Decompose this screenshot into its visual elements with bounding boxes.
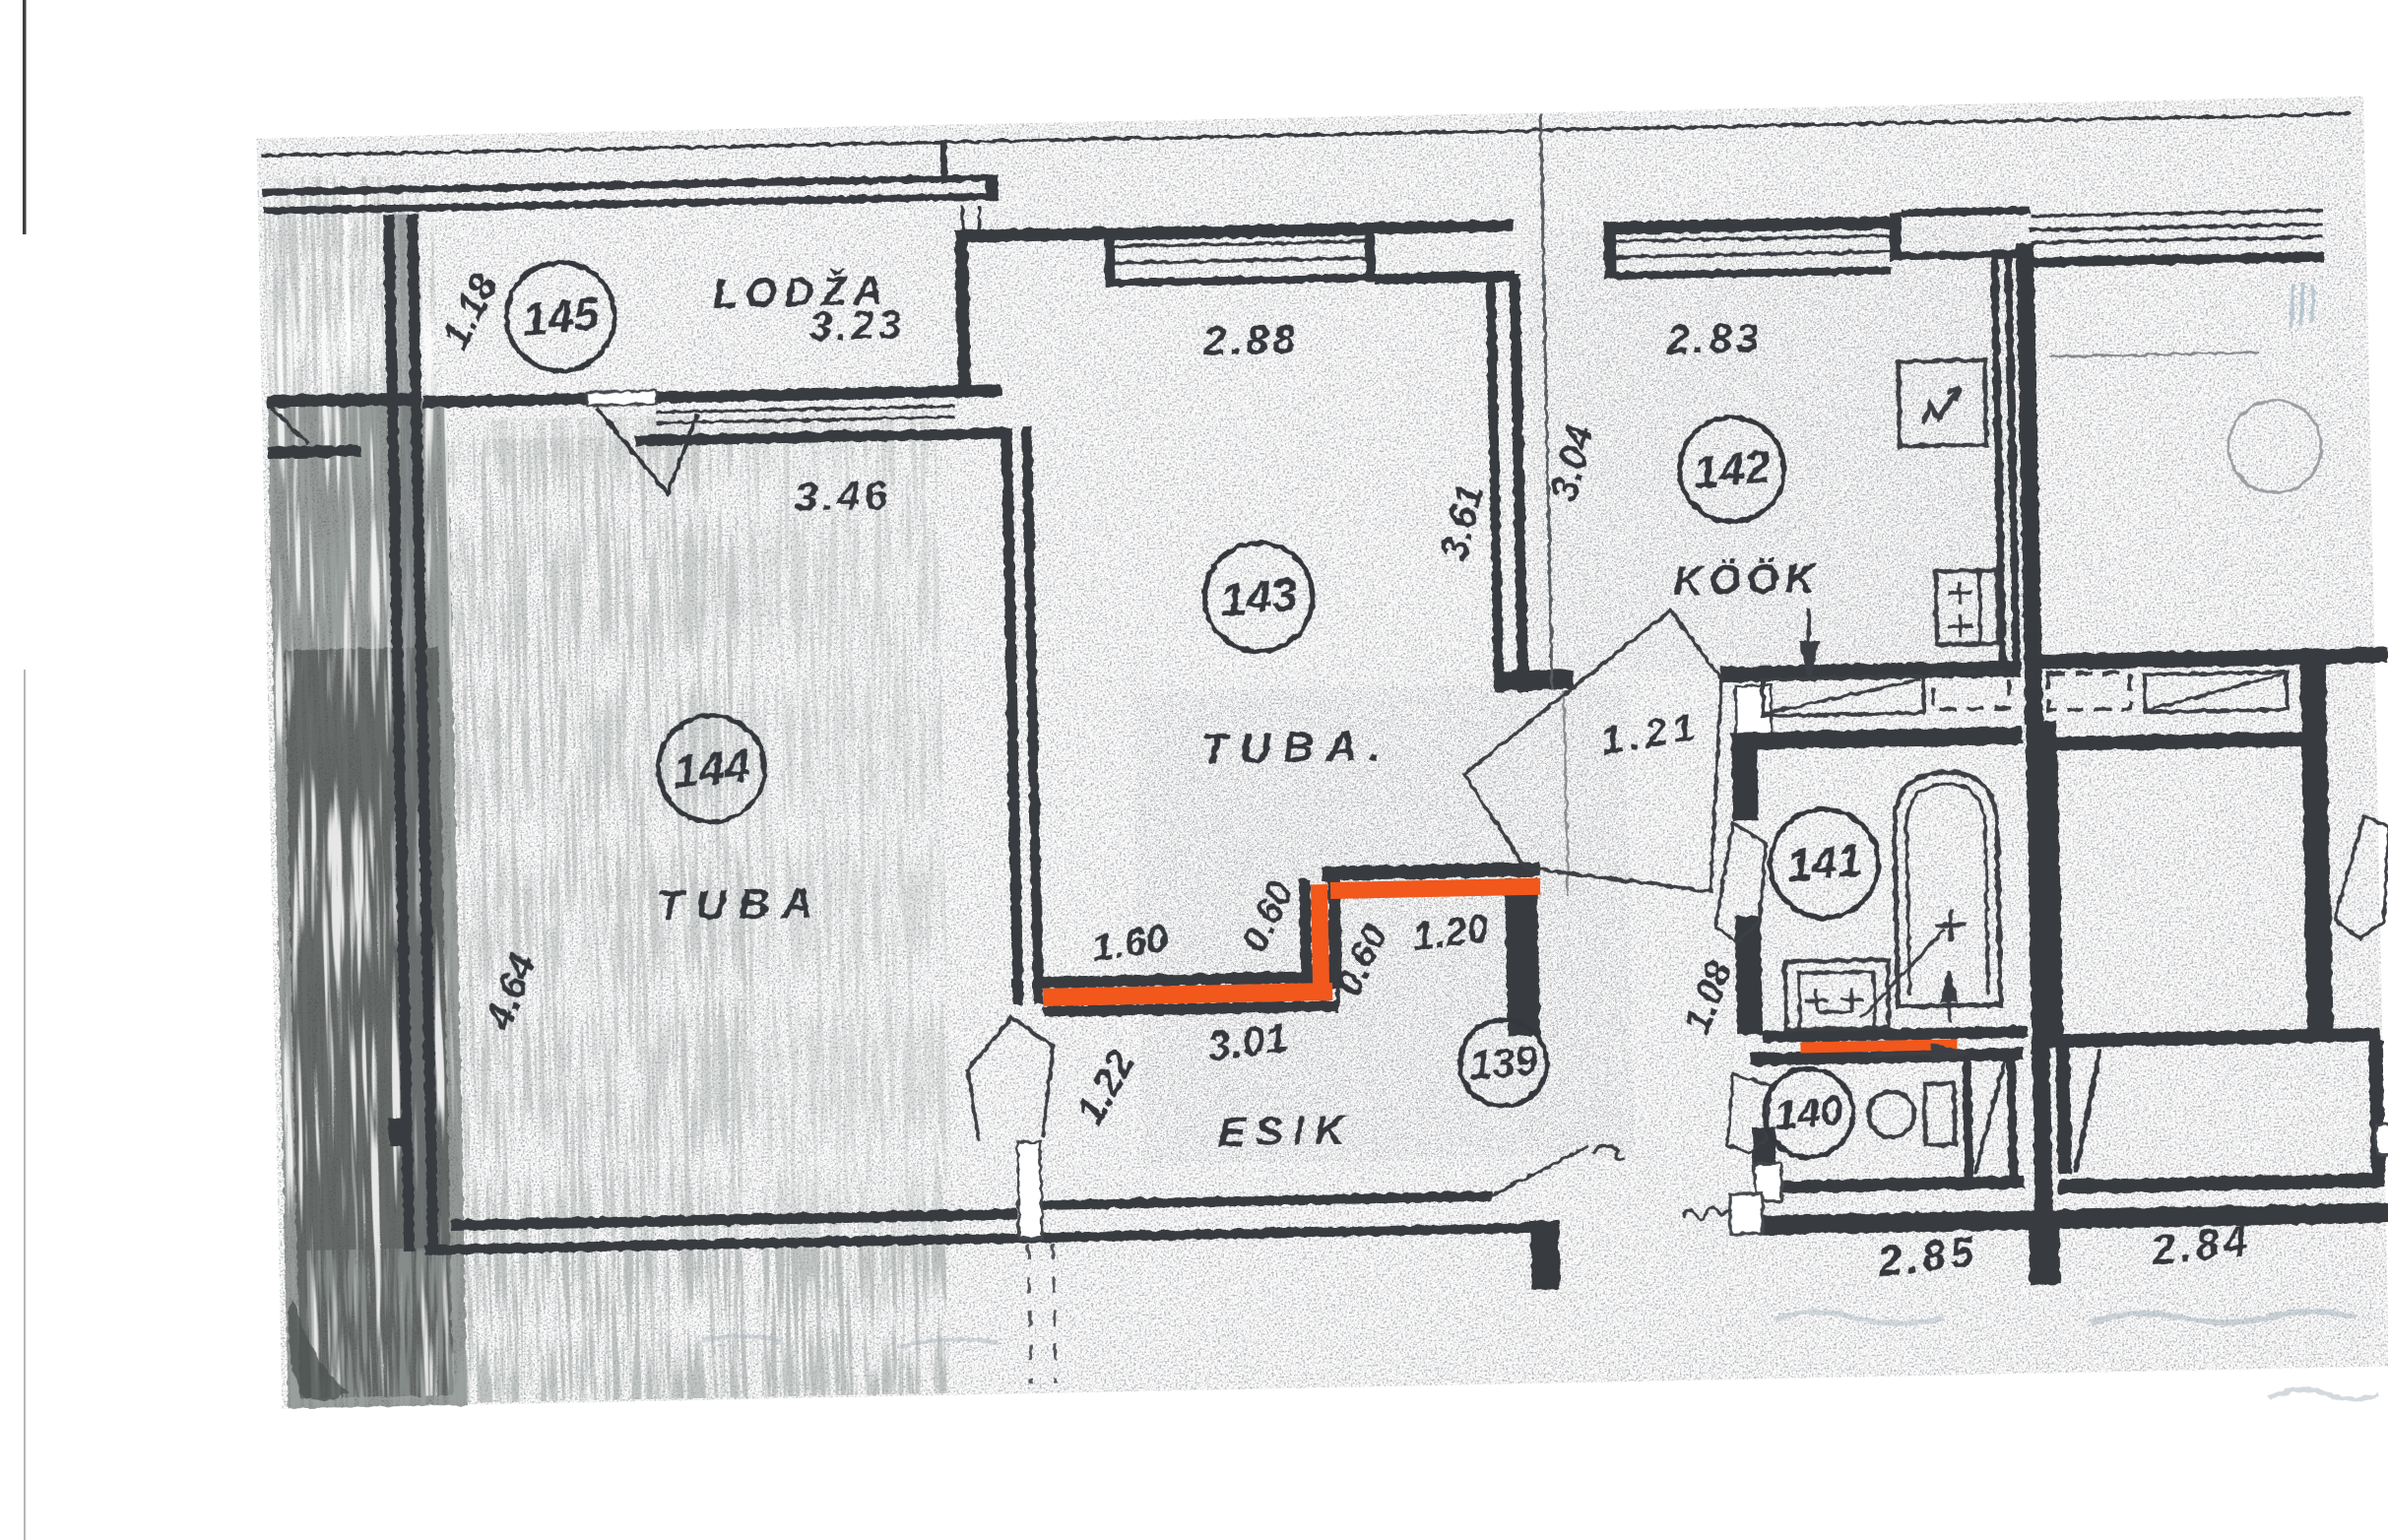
svg-text:TUBA.: TUBA. xyxy=(1201,722,1393,774)
svg-text:KÖÖK: KÖÖK xyxy=(1672,554,1821,604)
svg-text:139: 139 xyxy=(1467,1036,1541,1088)
svg-text:TUBA: TUBA xyxy=(657,878,825,930)
svg-text:144: 144 xyxy=(671,738,752,798)
svg-text:2.83: 2.83 xyxy=(1665,314,1764,362)
svg-text:3.46: 3.46 xyxy=(795,472,892,520)
svg-text:142: 142 xyxy=(1691,439,1773,498)
svg-text:140: 140 xyxy=(1773,1086,1845,1138)
svg-text:141: 141 xyxy=(1784,834,1864,892)
svg-text:143: 143 xyxy=(1218,567,1300,626)
svg-text:3.23: 3.23 xyxy=(808,301,906,350)
svg-text:145: 145 xyxy=(520,287,603,346)
svg-text:2.88: 2.88 xyxy=(1202,316,1301,364)
svg-text:ESIK: ESIK xyxy=(1218,1107,1355,1156)
